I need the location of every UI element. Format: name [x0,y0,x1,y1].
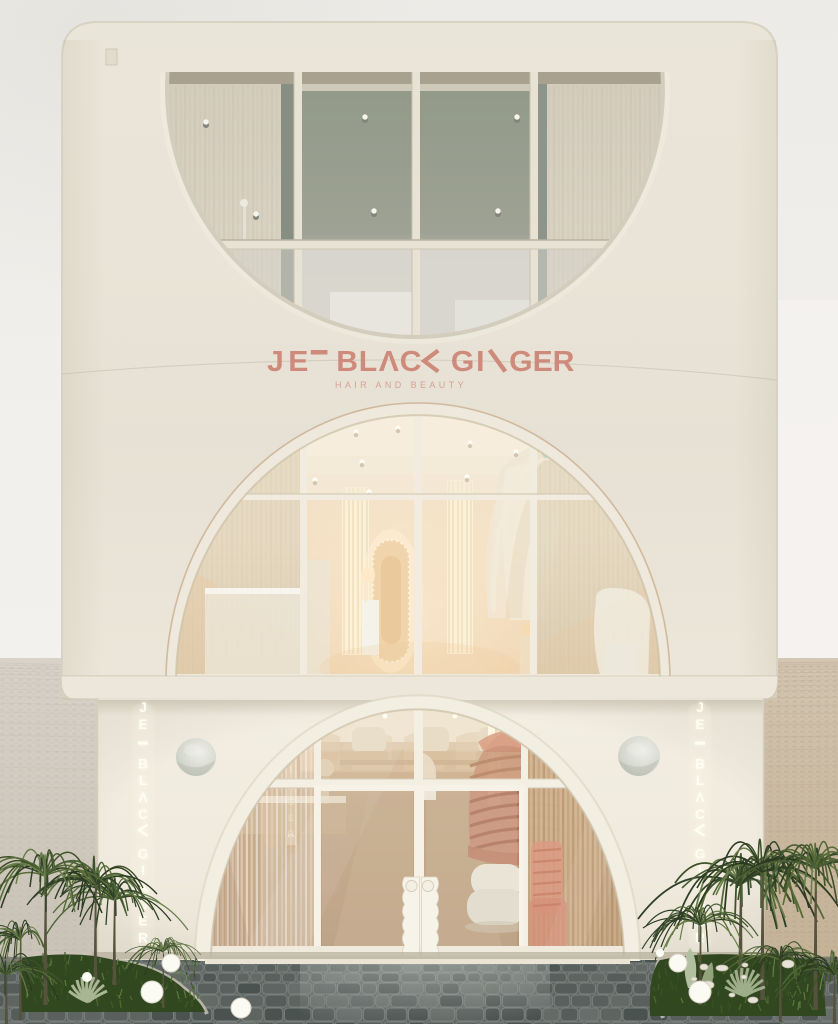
svg-text:B: B [138,756,148,771]
svg-text:E: E [288,346,308,378]
svg-text:Λ: Λ [138,790,147,805]
svg-text:Λ: Λ [695,790,704,805]
svg-text:J: J [267,346,284,378]
svg-text:C: C [695,807,705,822]
svg-text:G: G [695,846,706,861]
svg-text:J: J [696,700,704,715]
svg-text:I: I [141,863,145,878]
svg-text:E: E [138,717,147,732]
svg-text:C: C [400,346,422,378]
svg-text:J: J [139,700,147,715]
svg-text:E: E [695,717,704,732]
svg-text:L: L [696,773,704,788]
svg-text:B: B [695,756,705,771]
svg-text:B: B [336,346,358,378]
svg-text:HAIR AND BEAUTY: HAIR AND BEAUTY [335,380,467,390]
svg-text:Λ: Λ [379,346,399,378]
svg-text:L: L [359,346,377,378]
svg-text:C: C [138,807,148,822]
svg-text:R: R [138,930,148,945]
svg-text:R: R [553,346,575,378]
svg-text:E: E [533,346,553,378]
svg-text:G: G [138,846,149,861]
svg-text:G: G [509,346,532,378]
svg-text:G: G [451,346,474,378]
svg-text:L: L [139,773,147,788]
svg-text:I: I [476,346,484,378]
